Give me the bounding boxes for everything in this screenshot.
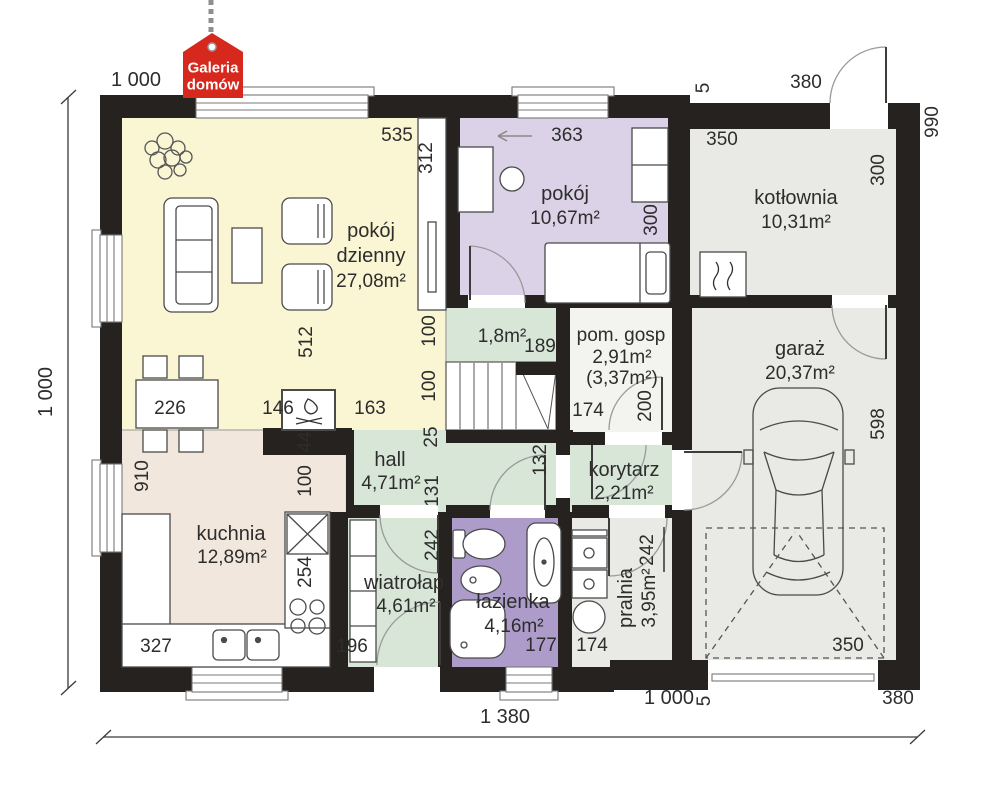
dim-350-boiler: 350 — [706, 129, 738, 150]
dim-363: 363 — [551, 125, 583, 146]
wall-utility-left — [556, 295, 570, 432]
dim-25: 25 — [421, 426, 442, 447]
window-living-left — [92, 230, 122, 327]
room-label-laundry: pralnia — [615, 567, 637, 628]
boiler — [700, 252, 746, 297]
dim-242-vestibule: 242 — [422, 529, 443, 561]
bedroom-door-gap — [468, 295, 525, 308]
sofa — [164, 198, 218, 312]
bathroom-door-gap — [490, 505, 545, 518]
wardrobe — [632, 128, 668, 202]
floor-plan-page: Galeria domów pokój dzienny 27,08m² pokó… — [0, 0, 994, 799]
dim-226: 226 — [154, 398, 186, 419]
tv — [428, 222, 436, 292]
dim-380-top: 380 — [790, 72, 822, 93]
dim-196: 196 — [336, 636, 368, 657]
garage-door-opening — [708, 660, 878, 690]
dim-177: 177 — [525, 635, 557, 656]
logo-hole — [208, 43, 216, 51]
dim-200: 200 — [635, 390, 656, 422]
chair — [143, 430, 167, 452]
room-label-corridor: korytarz — [588, 459, 659, 481]
room-label-living-1: pokój — [347, 220, 395, 242]
laundry-basin — [573, 601, 605, 633]
corridor-garage-door-gap — [672, 450, 692, 510]
room-area-corridor: 2,21m² — [594, 483, 653, 504]
dim-327: 327 — [140, 636, 172, 657]
dim-350-garage: 350 — [832, 635, 864, 656]
room-area-garage: 20,37m² — [765, 363, 835, 384]
chair — [179, 430, 203, 452]
dim-990: 990 — [922, 106, 943, 138]
dim-312: 312 — [416, 142, 437, 174]
logo-tag: Galeria domów — [183, 0, 243, 98]
toilet — [453, 529, 505, 559]
dim-189: 189 — [524, 336, 556, 357]
dim-5-bottom: 5 — [694, 696, 715, 707]
bidet — [461, 566, 501, 594]
room-area-closet: 1,8m² — [478, 326, 527, 347]
wall-bedroom-boiler — [668, 103, 690, 308]
room-area-vestibule: 4,61m² — [376, 596, 435, 617]
room-area-utility: 2,91m² — [592, 347, 651, 368]
fridge — [287, 514, 328, 554]
entrance-door-gap — [374, 667, 440, 692]
dim-512: 512 — [296, 326, 317, 358]
dim-left-1000: 1 000 — [35, 367, 57, 417]
room-area2-utility: (3,37m²) — [586, 368, 658, 389]
logo-text-2: domów — [187, 77, 240, 94]
room-label-kitchen: kuchnia — [197, 523, 267, 545]
desk — [458, 147, 493, 212]
dim-254: 254 — [295, 556, 316, 588]
armchair-2 — [282, 264, 332, 310]
room-label-garage: garaż — [775, 338, 825, 360]
dim-132: 132 — [530, 444, 551, 476]
room-label-bathroom: łazienka — [476, 591, 550, 613]
chair — [143, 356, 167, 378]
room-label-living-2: dzienny — [337, 245, 406, 267]
window-bedroom-top — [512, 87, 614, 118]
dim-300-boiler: 300 — [868, 154, 889, 186]
boiler-garage-door-gap — [832, 295, 888, 308]
dim-242-laundry: 242 — [637, 534, 658, 566]
room-label-boiler: kotłownia — [754, 187, 838, 209]
dim-300-bedroom: 300 — [641, 204, 662, 236]
hall-corridor-opening — [556, 455, 570, 498]
dim-bottom-1000: 1 000 — [644, 687, 694, 709]
dim-910: 910 — [132, 460, 153, 492]
logo-text-1: Galeria — [188, 60, 240, 77]
dim-380-bottom: 380 — [882, 688, 914, 709]
window-kitchen-left — [92, 460, 122, 556]
dim-174-laundry: 174 — [576, 635, 608, 656]
chair — [179, 356, 203, 378]
utility-door-gap — [605, 432, 662, 445]
washer-dryer — [572, 530, 607, 598]
room-area-bathroom: 4,16m² — [484, 616, 543, 637]
boiler-ext-door-gap — [830, 103, 888, 129]
armchair-1 — [282, 198, 332, 244]
room-label-utility: pom. gosp — [577, 325, 666, 346]
wall-stairs-hall — [446, 430, 573, 443]
room-area-living: 27,08m² — [336, 271, 406, 292]
dim-5-top: 5 — [693, 83, 714, 94]
dim-535: 535 — [381, 125, 413, 146]
dim-bottom-1380: 1 380 — [480, 706, 530, 728]
room-area-laundry: 3,95m² — [639, 568, 660, 627]
dim-100b: 100 — [419, 370, 440, 402]
dim-598: 598 — [868, 408, 889, 440]
room-label-bedroom: pokój — [541, 183, 589, 205]
dim-146: 146 — [262, 398, 294, 419]
floor-plan-drawing: Galeria domów pokój dzienny 27,08m² pokó… — [0, 0, 994, 799]
coffee-table — [232, 228, 262, 283]
dim-100a: 100 — [419, 315, 440, 347]
pillow — [646, 252, 666, 294]
dim-174-utility: 174 — [572, 400, 604, 421]
laundry-door-gap — [609, 505, 665, 518]
room-area-hall: 4,71m² — [361, 473, 420, 494]
dim-163: 163 — [354, 398, 386, 419]
window-bathroom-bottom — [500, 667, 558, 700]
room-area-bedroom: 10,67m² — [530, 208, 600, 229]
dim-top-left-1000: 1 000 — [111, 69, 161, 91]
desk-chair — [500, 167, 524, 191]
room-label-hall: hall — [374, 449, 405, 471]
dim-131: 131 — [422, 475, 443, 507]
dim-44: 44 — [295, 431, 316, 453]
window-kitchen-bottom — [186, 667, 288, 700]
room-area-kitchen: 12,89m² — [197, 547, 267, 568]
room-area-boiler: 10,31m² — [761, 212, 831, 233]
room-label-vestibule: wiatrołap — [363, 572, 444, 594]
bed — [545, 243, 670, 303]
dim-100-kitchen: 100 — [295, 465, 316, 497]
